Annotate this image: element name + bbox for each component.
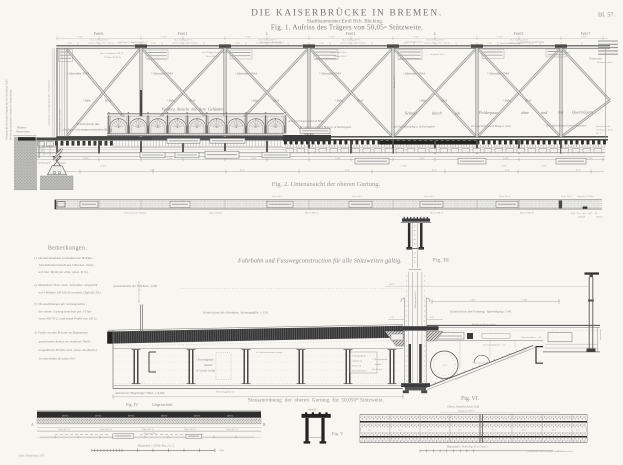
svg-text:2,487: 2,487 — [522, 298, 528, 301]
svg-text:25,025: 25,025 — [100, 164, 107, 167]
svg-text:7,150: 7,150 — [329, 35, 335, 38]
svg-text:Bohlen auf Eisen verlegt: Bohlen auf Eisen verlegt — [472, 323, 496, 326]
svg-text:Niveau d. NN.: Niveau d. NN. — [143, 433, 157, 435]
svg-text:+Gitterstäbe 70·8·9: +Gitterstäbe 70·8·9 — [235, 73, 258, 76]
svg-text:durch: durch — [432, 111, 442, 116]
svg-text:1,786: 1,786 — [235, 43, 240, 45]
svg-text:(50,050: (50,050 — [578, 215, 586, 218]
svg-text:300·12: 300·12 — [62, 416, 68, 418]
svg-text:60·10: 60·10 — [525, 100, 532, 103]
svg-text:1,786: 1,786 — [109, 43, 114, 45]
svg-text:+2,000+: +2,000+ — [500, 166, 508, 168]
svg-text:Blech 300·12: Blech 300·12 — [305, 212, 319, 215]
svg-text:5,000: 5,000 — [503, 157, 509, 160]
svg-text:7,150: 7,150 — [497, 35, 503, 38]
svg-text:Pfosten No 2: Pfosten No 2 — [393, 75, 396, 88]
svg-text:Asphalt auf: Asphalt auf — [352, 360, 362, 363]
svg-text:1,786: 1,786 — [361, 43, 366, 45]
svg-text:5,000: 5,000 — [419, 157, 425, 160]
svg-text:1,786: 1,786 — [487, 43, 492, 45]
svg-text:Asphalt: Asphalt — [374, 363, 382, 366]
svg-text:300·12: 300·12 — [161, 416, 167, 418]
svg-text:Querträgern.: Querträgern. — [572, 110, 594, 115]
svg-text:2) Sämmtliche Niete bezw. S: 2) Sämmtliche Niete bezw. Schrauben herg… — [34, 283, 98, 287]
svg-text:60·10: 60·10 — [441, 100, 448, 103]
svg-text:Ansicht.: Ansicht. — [307, 409, 317, 412]
svg-text:Schnitt durch das: Schnitt durch das — [77, 122, 101, 126]
svg-text:5,000: 5,000 — [83, 157, 89, 160]
svg-text:7,150: 7,150 — [77, 35, 83, 38]
svg-text:in Cement verlegt: in Cement verlegt — [196, 370, 215, 373]
svg-text:1) Die durchlaufende schmiede: 1) Die durchlaufende schmiedeiserne Brüc… — [34, 256, 94, 260]
svg-text:2,487: 2,487 — [470, 298, 476, 301]
svg-text:mit Doppel-Ausgleichung No.2: mit Doppel-Ausgleichung No.2 — [118, 41, 148, 44]
svg-text:+Gitterstäbe 70·8·9: +Gitterstäbe 70·8·9 — [319, 73, 342, 76]
svg-text:Volle Tragplatte 10: Volle Tragplatte 10 — [216, 390, 235, 393]
svg-text:Bemerkungen.: Bemerkungen. — [48, 246, 87, 252]
svg-text:31,2: 31,2 — [428, 429, 432, 431]
svg-text:ohne Doppel-Ausgleichung No.3: ohne Doppel-Ausgleichung No.3 — [202, 51, 233, 54]
svg-text:und: und — [541, 110, 548, 115]
svg-text:Feld 6.: Feld 6. — [94, 32, 105, 36]
svg-text:300·12: 300·12 — [128, 416, 134, 418]
svg-text:5,000: 5,000 — [167, 157, 173, 160]
svg-text:4.: 4. — [434, 32, 437, 36]
svg-text:5,000: 5,000 — [335, 157, 341, 160]
svg-text:Fig. 2. Untenansicht der obere: Fig. 2. Untenansicht der oberen Gurtung. — [272, 181, 381, 188]
svg-text:Fig. IV.: Fig. IV. — [126, 402, 139, 407]
svg-text:mit 4 Winkeln 100·100·10 verni: mit 4 Winkeln 100·100·10 vernietet. (Taf… — [34, 290, 101, 294]
svg-text:7,150: 7,150 — [245, 35, 251, 38]
svg-text:1 Obergurtplatte: 1 Obergurtplatte — [372, 358, 388, 361]
svg-text:Lage der 7 Felder: Lage der 7 Felder — [576, 196, 594, 198]
svg-text:bei abgenommenem Belag u. Glei: bei abgenommenem Belag u. Gleis — [471, 124, 512, 128]
svg-text:B.: B. — [263, 423, 266, 427]
svg-text:Querschwellen a = 0,9: Querschwellen a = 0,9 — [521, 337, 542, 339]
svg-text:Platte 300·12: Platte 300·12 — [142, 429, 154, 431]
svg-text:Verlag von Arnold Bergsträsser: Verlag von Arnold Bergsträsser in Darmst… — [527, 450, 573, 453]
svg-text:Normalprofil des lichten Raume: Normalprofil des lichten Raumes für die … — [6, 79, 9, 140]
svg-text:Platte 300·12: Platte 300·12 — [100, 429, 112, 431]
svg-text:Wasserstand: Wasserstand — [16, 130, 30, 133]
svg-text:Gurtplatte No.3: Gurtplatte No.3 — [430, 54, 445, 56]
svg-text:60·10: 60·10 — [357, 100, 364, 103]
svg-text:Unterseite der Platten: Unterseite der Platten — [124, 212, 147, 215]
svg-text:Vordere Ansicht mit dem Ge: Vordere Ansicht mit dem Geländer. — [162, 107, 225, 112]
svg-text:2.: 2. — [266, 32, 269, 36]
svg-text:Stoss No.5.: Stoss No.5. — [561, 195, 573, 198]
svg-text:Fig. III.: Fig. III. — [433, 258, 451, 264]
svg-text:+Stäbe: +Stäbe — [335, 100, 344, 103]
svg-text:No. 7.: No. 7. — [595, 133, 602, 135]
svg-text:oberer Gurt, Blech 300·12: oberer Gurt, Blech 300·12 — [260, 42, 285, 44]
svg-text:+2,000+: +2,000+ — [400, 166, 408, 168]
svg-text:30,3 31,2 30,1 30,1 + 30: 30,3 31,2 30,1 30,1 + 30 — [571, 213, 598, 215]
svg-text:1 Obergurtplatte: 1 Obergurtplatte — [352, 355, 366, 358]
svg-text:Stoss No.4.: Stoss No.4. — [499, 195, 511, 198]
svg-text:4,975: 4,975 — [389, 283, 395, 286]
svg-text:Auflager mit ausgewechseltem B: Auflager mit ausgewechseltem Belag. — [62, 128, 113, 132]
svg-text:ein: ein — [455, 111, 460, 116]
svg-text:in Schwemmsteinen verlegt: in Schwemmsteinen verlegt — [256, 351, 282, 354]
svg-text:Consolenabstand = 1,5: Consolenabstand = 1,5 — [483, 344, 506, 347]
svg-text:Trägermitte: Trägermitte — [589, 58, 603, 61]
svg-text:+Stäbe: +Stäbe — [83, 100, 92, 103]
svg-text:ist entschieden für jeden Fall: ist entschieden für jeden Fall . — [34, 357, 76, 361]
svg-text:Auflagerdruck für Eigengewicht: Auflagerdruck für Eigengewicht u. Verkeh… — [48, 80, 51, 126]
svg-text:(Querschnitt): (Querschnitt) — [209, 211, 222, 214]
svg-text:der oberen Gurtung berechnet a: der oberen Gurtung berechnet aus 3 Flan- — [34, 309, 92, 313]
svg-text:mit Winkel-Ausgleichung: mit Winkel-Ausgleichung — [520, 41, 545, 44]
svg-text:Deckplatte: Deckplatte — [560, 52, 570, 54]
svg-text:Stossanordnung der oberen G: Stossanordnung der oberen Gurtung für 50… — [248, 398, 384, 404]
svg-text:Feld 1.: Feld 1. — [178, 32, 189, 36]
svg-text:Auflager: Auflager — [57, 162, 67, 165]
svg-text:Schnitt: Schnitt — [405, 111, 417, 116]
svg-text:+2,000+: +2,000+ — [540, 166, 548, 168]
svg-text:Feld 5.: Feld 5. — [514, 32, 525, 36]
svg-text:+Stäbe: +Stäbe — [251, 100, 260, 103]
svg-text:7,150: 7,150 — [161, 35, 167, 38]
svg-text:Stadtbaumeister Emil Hch. Bück: Stadtbaumeister Emil Hch. Bücking. — [307, 18, 383, 24]
svg-text:60·10: 60·10 — [105, 100, 112, 103]
svg-text:1,786: 1,786 — [193, 43, 198, 45]
svg-text:Längenschnitt.: Längenschnitt. — [151, 403, 173, 407]
svg-text:31,2: 31,2 — [368, 429, 372, 431]
svg-text:1,786: 1,786 — [151, 43, 156, 45]
svg-text:Abfluss des Tagewassers: Abfluss des Tagewassers — [138, 281, 141, 303]
svg-text:1,786: 1,786 — [67, 43, 72, 45]
svg-text:Fahrbahn und Fusswegconstructi: Fahrbahn und Fusswegconstruction für all… — [237, 258, 402, 265]
svg-text:Ansicht bei abgenommenem Belag: Ansicht bei abgenommenem Belag — [287, 120, 325, 123]
svg-text:Bl. 57.: Bl. 57. — [598, 12, 616, 19]
svg-text:mit Fahrbahnbelag u. Schieneng: mit Fahrbahnbelag u. Schienengleis — [393, 125, 436, 129]
svg-text:+Gitterstäbe 70·8·9: +Gitterstäbe 70·8·9 — [487, 73, 510, 76]
svg-text:5,000: 5,000 — [587, 157, 593, 160]
svg-text:300·12: 300·12 — [95, 416, 101, 418]
svg-text:obere Gurtplatten 300·12: obere Gurtplatten 300·12 — [100, 53, 124, 55]
svg-text:31,2: 31,2 — [458, 429, 462, 431]
svg-text:31,2: 31,2 — [492, 429, 496, 431]
svg-text:Gurtung am Ende: Gurtung am Ende — [596, 129, 612, 132]
svg-text:+Stäbe: +Stäbe — [167, 100, 176, 103]
svg-text:300·12: 300·12 — [227, 416, 233, 418]
svg-text:2 Winkel 90·90·11: 2 Winkel 90·90·11 — [104, 57, 122, 59]
svg-text:+Stäbe: +Stäbe — [419, 100, 428, 103]
svg-text:Rollenlager: Rollenlager — [37, 162, 50, 165]
svg-text:60·10: 60·10 — [189, 100, 196, 103]
svg-text:1 Mtr.: 1 Mtr. — [219, 449, 225, 452]
svg-text:31,2: 31,2 — [552, 429, 556, 431]
svg-text:300·12: 300·12 — [194, 416, 200, 418]
svg-text:4) Felder von den Brücken im: 4) Felder von den Brücken im Allgemeinen — [34, 331, 88, 335]
svg-text:Mittelpfosten No.2: Mittelpfosten No.2 — [414, 291, 417, 308]
svg-text:Feld 3.: Feld 3. — [346, 32, 357, 36]
svg-text:Blech 300·10: Blech 300·10 — [206, 56, 219, 58]
svg-text:Stoss No.2.: Stoss No.2. — [352, 195, 364, 198]
svg-text:ohne: ohne — [521, 110, 529, 115]
svg-text:Platten 300·11: Platten 300·11 — [334, 56, 348, 58]
svg-text:+Stäbe: +Stäbe — [503, 100, 512, 103]
svg-text:35k Beton: 35k Beton — [372, 368, 383, 371]
svg-text:7,150: 7,150 — [581, 35, 587, 38]
svg-text:Fig. V.: Fig. V. — [331, 431, 345, 436]
svg-text:Platte 300·12: Platte 300·12 — [184, 429, 196, 431]
svg-text:Beton 35k: Beton 35k — [352, 366, 362, 368]
svg-text:Querschnitt der: Querschnitt der — [596, 125, 611, 128]
svg-text:31,2: 31,2 — [522, 429, 526, 431]
svg-text:60·10: 60·10 — [273, 100, 280, 103]
svg-text:Schwemmsteine: Schwemmsteine — [352, 371, 366, 373]
svg-text:1,786: 1,786 — [445, 43, 450, 45]
svg-text:Maassstab 1:10 für Fig. VI u.: Maassstab 1:10 für Fig. VI u. Canal 1. — [446, 446, 489, 449]
svg-text:bei abgehobenen Schwemmsteinen: bei abgehobenen Schwemmsteinen — [546, 124, 587, 128]
svg-text:Allgm. Bauzeitung 1876.: Allgm. Bauzeitung 1876. — [17, 454, 45, 457]
svg-text:Blech 300·11: Blech 300·11 — [430, 212, 443, 215]
svg-text:Maassstab 1:10 für Fig. 1 u. 2: Maassstab 1:10 für Fig. 1 u. 2. — [137, 443, 176, 447]
svg-text:7,150: 7,150 — [413, 35, 419, 38]
svg-text:31,2: 31,2 — [398, 429, 402, 431]
svg-text:Stütze): Stütze) — [596, 215, 603, 218]
svg-text:+Gitterstäbe 70·8·9: +Gitterstäbe 70·8·9 — [151, 73, 174, 76]
svg-text:Blech 300·10: Blech 300·10 — [520, 212, 534, 215]
svg-text:2 Deckplatten No.5: 2 Deckplatten No.5 — [405, 42, 424, 44]
svg-text:Endquerverband: Endquerverband — [596, 62, 613, 64]
svg-text:1,786: 1,786 — [319, 43, 324, 45]
svg-text:Stützendruck am Auflager: Stützendruck am Auflager — [59, 109, 62, 132]
svg-text:Asphalt: Asphalt — [203, 364, 212, 367]
svg-text:Tragplatte 300·12: Tragplatte 300·12 — [458, 410, 475, 413]
svg-text:1 Fusswegplatte: 1 Fusswegplatte — [196, 359, 214, 362]
svg-text:A.: A. — [31, 423, 35, 427]
svg-text:+Gitterstäbe 70·8·9: +Gitterstäbe 70·8·9 — [67, 73, 90, 76]
svg-text:Querschnitt No 4: Querschnitt No 4 — [140, 101, 143, 118]
svg-text:Fig. 1. Aufriss des Trägers vo: Fig. 1. Aufriss des Trägers von 50,05m S… — [271, 25, 423, 32]
svg-text:für die durchgehenden Geleise: für die durchgehenden Geleise der Strass… — [10, 89, 13, 140]
svg-text:Stoss No.3.: Stoss No.3. — [424, 195, 436, 198]
svg-text:Fig. VI.: Fig. VI. — [461, 396, 480, 402]
svg-text:DIE KAISERBRÜCKE IN BREMEN.: DIE KAISERBRÜCKE IN BREMEN. — [251, 7, 443, 19]
svg-text:Mittlerer: Mittlerer — [16, 127, 28, 130]
svg-text:+Gitterstäbe 70·8·9: +Gitterstäbe 70·8·9 — [403, 73, 426, 76]
svg-text:Obere Ansicht nach A.B.: Obere Ansicht nach A.B. — [447, 405, 480, 409]
svg-text:Platte 300·12: Platte 300·12 — [58, 429, 70, 431]
svg-text:mit: mit — [558, 110, 564, 115]
svg-text:Platte 300·12: Platte 300·12 — [226, 429, 238, 431]
svg-text:31,2: 31,2 — [576, 429, 580, 431]
svg-text:oberer Stoss No.2: oberer Stoss No.2 — [330, 52, 347, 54]
svg-text:Stoss No.1.: Stoss No.1. — [272, 195, 284, 198]
svg-text:5,000: 5,000 — [251, 157, 257, 160]
